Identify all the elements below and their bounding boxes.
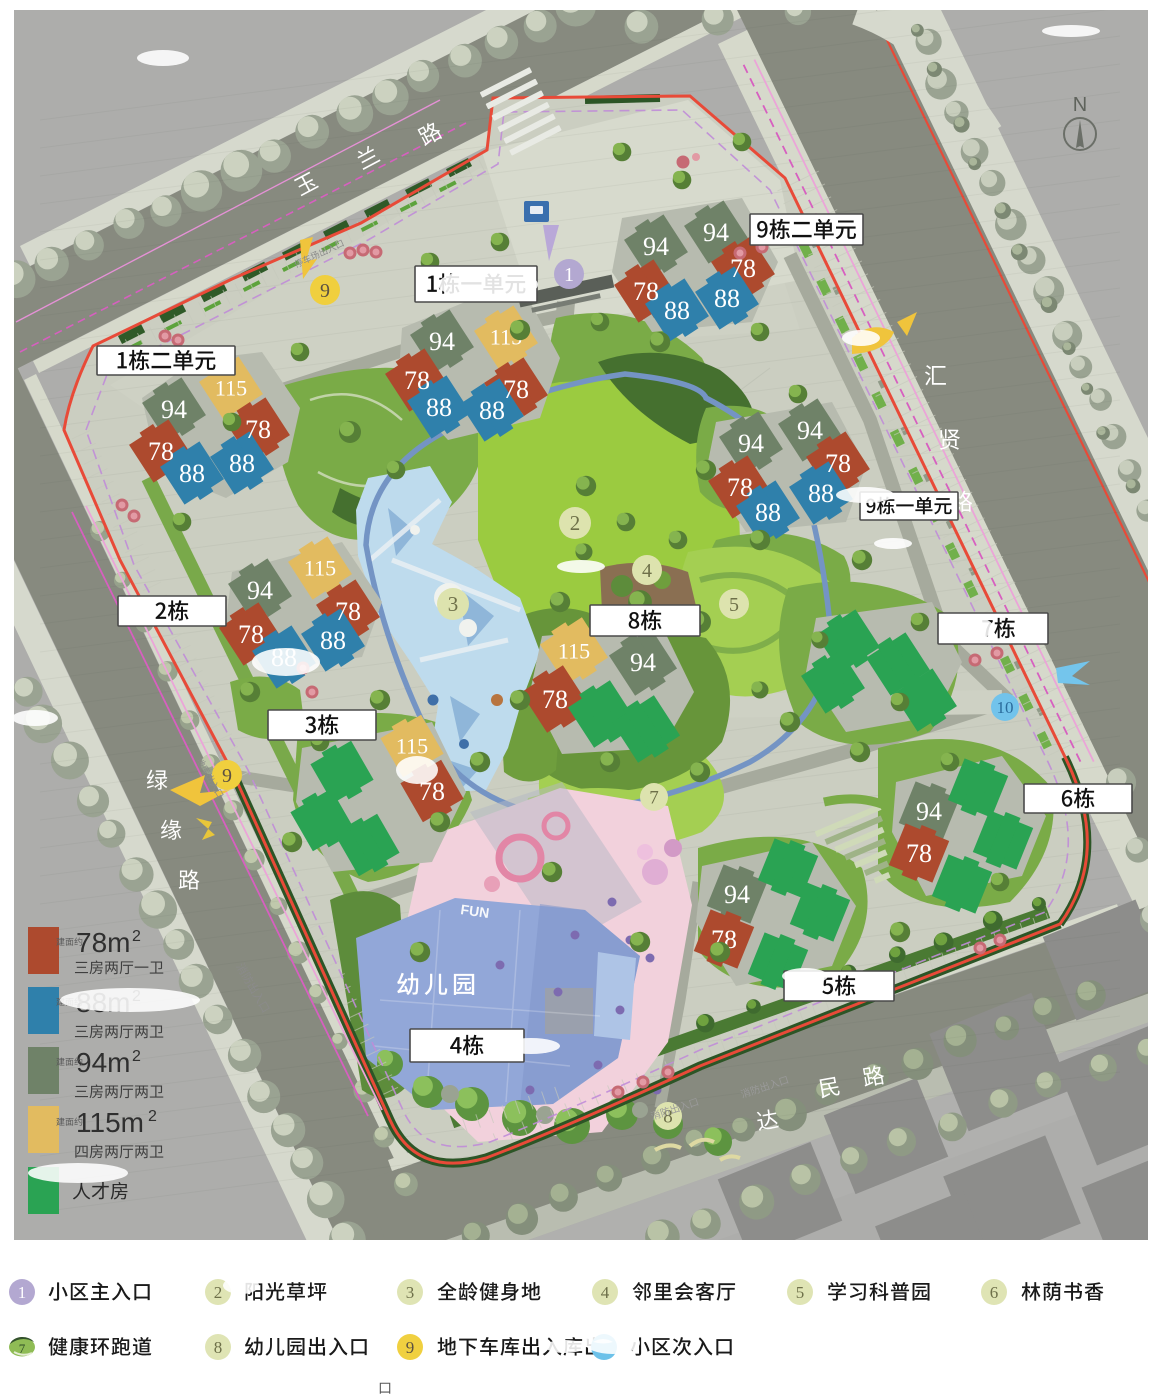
svg-text:115: 115 (304, 556, 336, 581)
svg-text:78: 78 (906, 839, 932, 868)
svg-text:5: 5 (729, 594, 739, 616)
svg-text:7: 7 (649, 788, 659, 809)
svg-text:88: 88 (229, 449, 255, 478)
svg-text:9: 9 (222, 765, 232, 787)
svg-text:3: 3 (448, 592, 459, 616)
svg-text:94: 94 (724, 880, 750, 909)
svg-text:8: 8 (663, 1107, 673, 1128)
svg-text:88: 88 (808, 479, 834, 508)
svg-text:2: 2 (132, 1048, 141, 1065)
svg-text:88: 88 (714, 284, 740, 313)
svg-text:78: 78 (633, 277, 659, 306)
svg-text:88: 88 (664, 296, 690, 325)
svg-text:78: 78 (245, 415, 271, 444)
svg-text:9: 9 (406, 1338, 415, 1357)
svg-text:78: 78 (335, 597, 361, 626)
svg-text:88: 88 (179, 459, 205, 488)
svg-text:6: 6 (990, 1283, 999, 1302)
svg-text:94: 94 (643, 232, 669, 261)
svg-text:88: 88 (320, 626, 346, 655)
svg-text:4: 4 (642, 560, 652, 582)
svg-text:88: 88 (479, 396, 505, 425)
svg-text:88: 88 (755, 498, 781, 527)
svg-text:5: 5 (796, 1283, 805, 1302)
svg-text:78: 78 (825, 449, 851, 478)
svg-text:94: 94 (247, 576, 273, 605)
svg-text:9: 9 (320, 280, 330, 302)
svg-text:78: 78 (238, 620, 264, 649)
svg-text:10: 10 (997, 698, 1014, 717)
svg-text:8: 8 (214, 1338, 223, 1357)
svg-text:2: 2 (214, 1283, 223, 1302)
svg-text:78m: 78m (76, 927, 130, 958)
svg-text:78: 78 (727, 473, 753, 502)
svg-text:115: 115 (215, 376, 247, 401)
svg-text:94: 94 (738, 429, 764, 458)
svg-text:2: 2 (148, 1108, 157, 1125)
svg-text:78: 78 (404, 366, 430, 395)
svg-text:94: 94 (916, 797, 942, 826)
svg-text:94: 94 (429, 327, 455, 356)
svg-text:115m: 115m (76, 1107, 144, 1138)
svg-text:94: 94 (630, 648, 656, 677)
svg-text:115: 115 (396, 734, 428, 759)
svg-text:3: 3 (406, 1283, 415, 1302)
svg-text:1: 1 (18, 1283, 27, 1302)
svg-text:78: 78 (148, 437, 174, 466)
svg-text:78: 78 (542, 685, 568, 714)
svg-text:N: N (1073, 94, 1087, 116)
svg-text:94: 94 (161, 395, 187, 424)
svg-text:88: 88 (426, 393, 452, 422)
svg-text:115: 115 (558, 639, 590, 664)
svg-text:94: 94 (703, 218, 729, 247)
svg-text:7: 7 (19, 1341, 26, 1356)
svg-text:1: 1 (564, 264, 574, 286)
svg-text:94: 94 (797, 416, 823, 445)
svg-text:2: 2 (132, 928, 141, 945)
svg-text:78: 78 (503, 375, 529, 404)
svg-text:94m: 94m (76, 1047, 130, 1078)
svg-text:4: 4 (601, 1283, 610, 1302)
svg-text:2: 2 (570, 511, 581, 535)
